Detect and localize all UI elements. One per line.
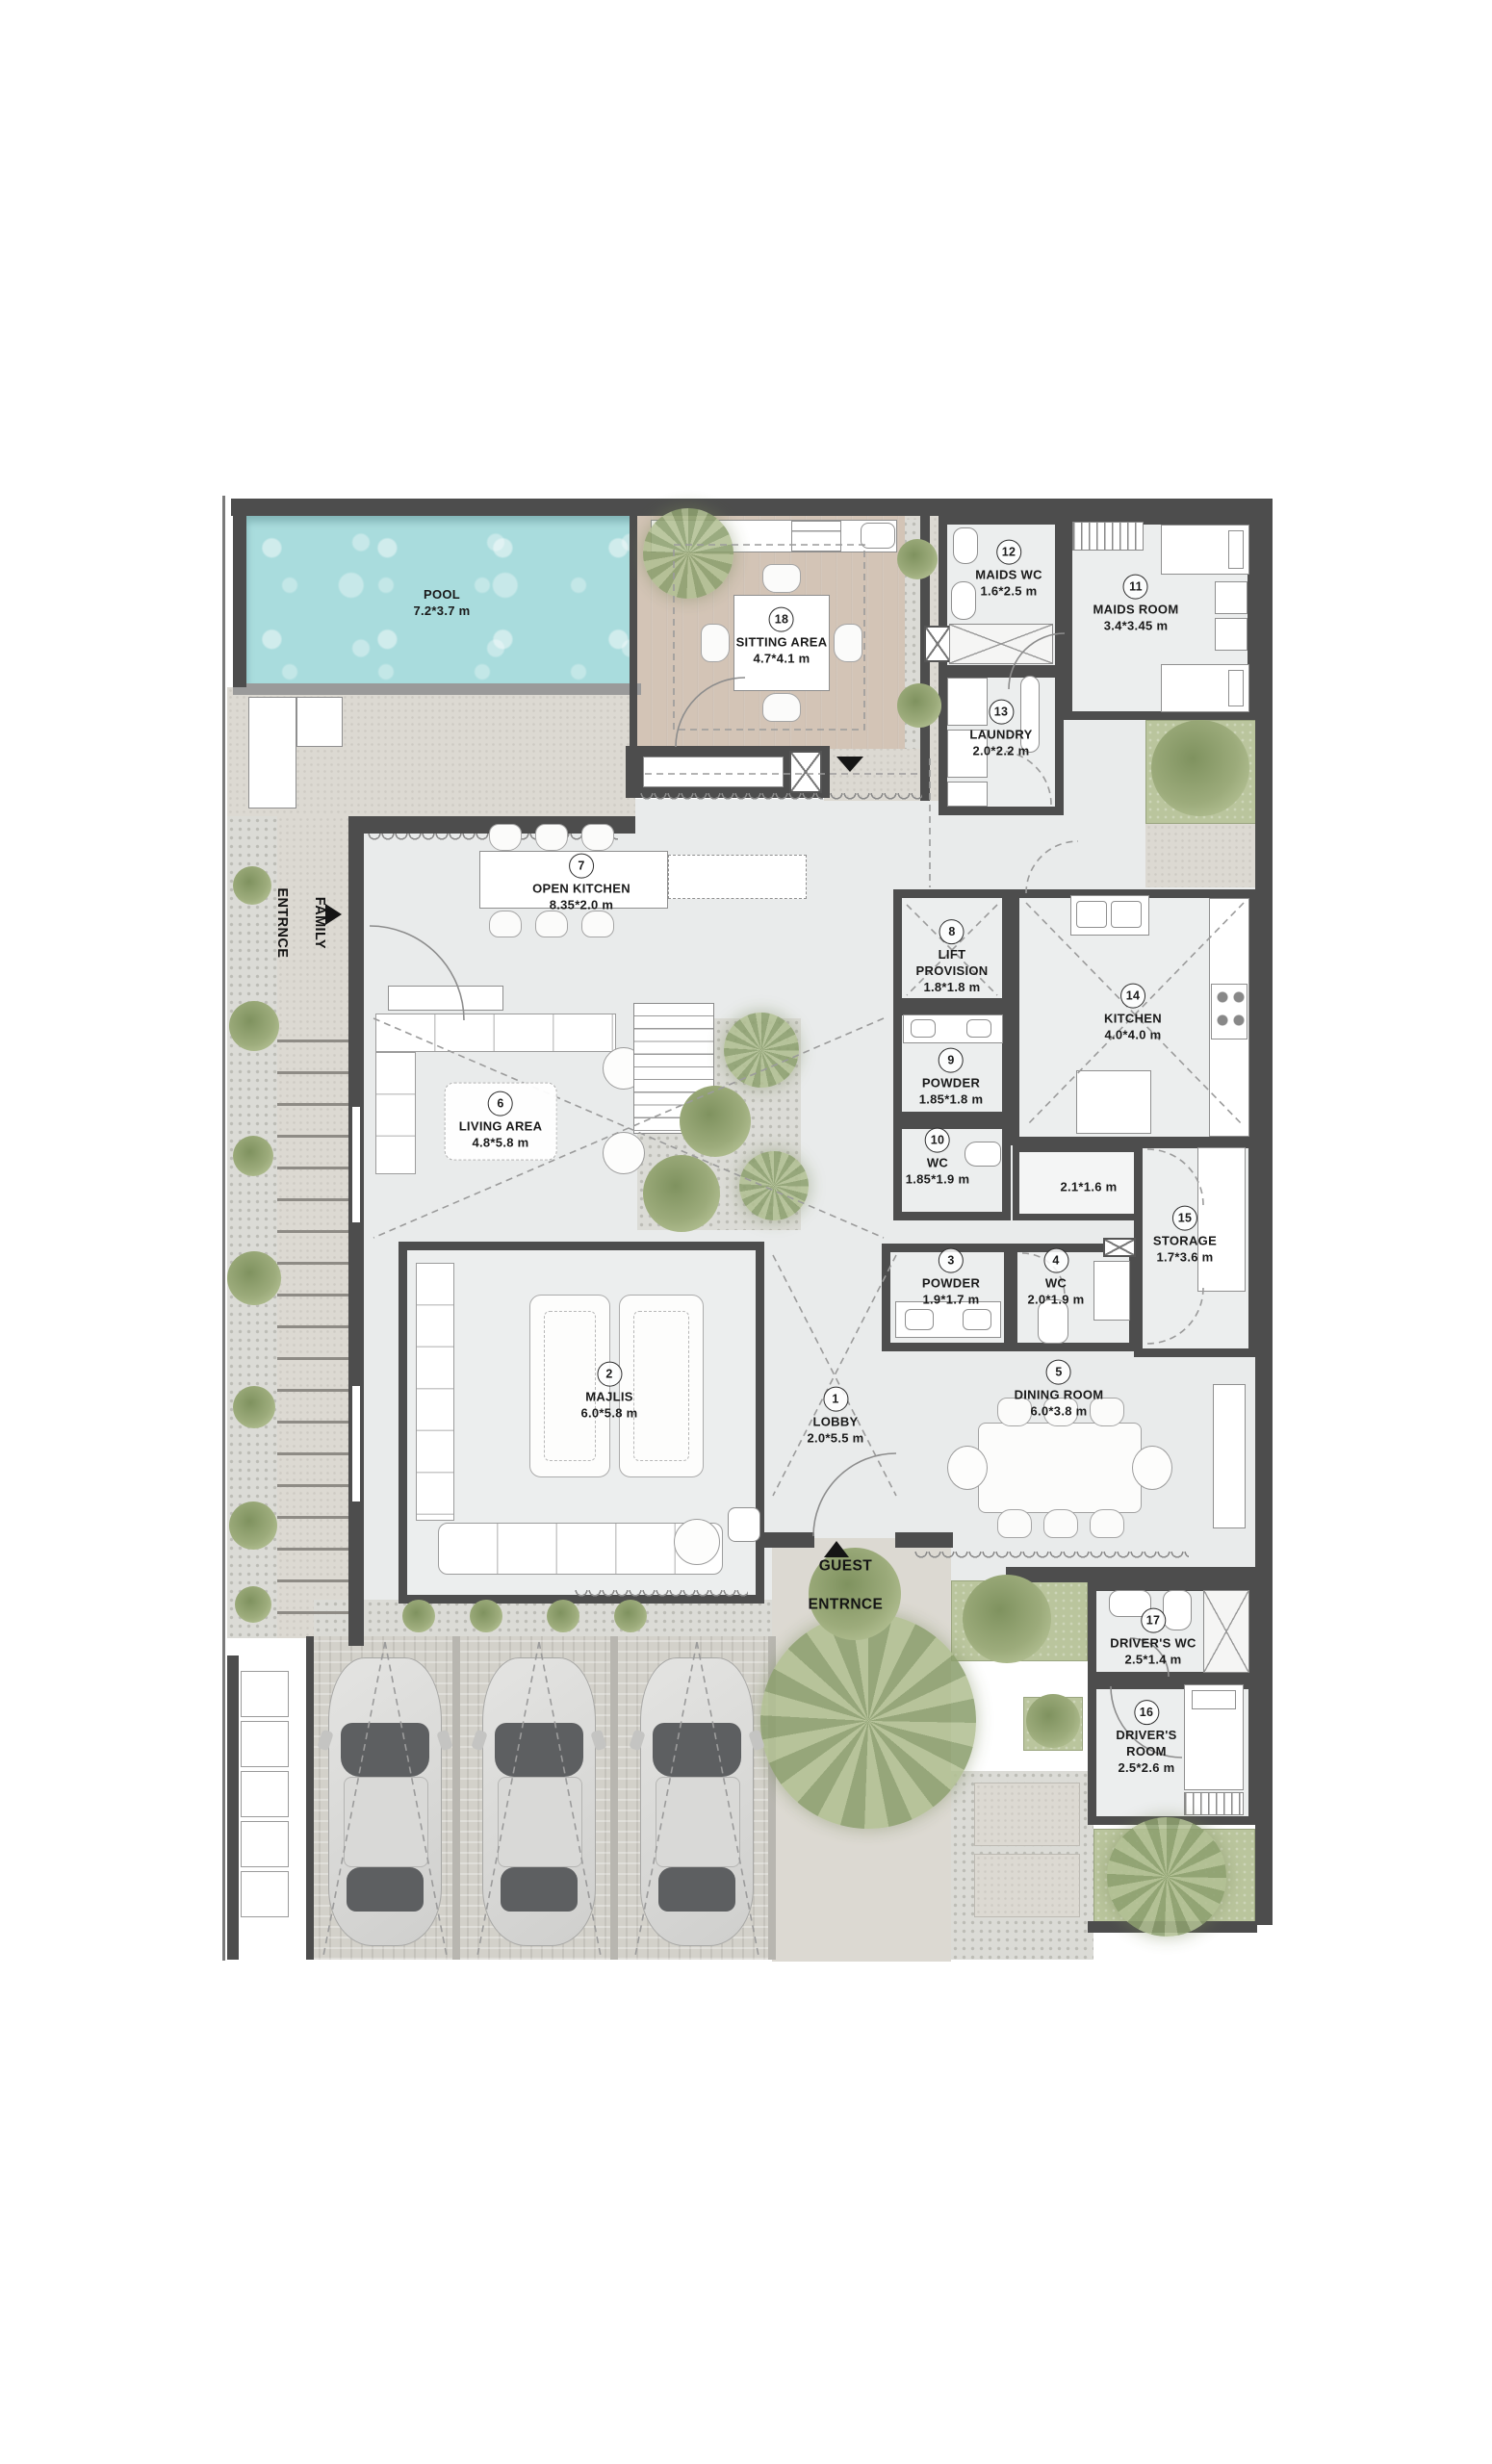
stool-5 bbox=[535, 911, 568, 937]
side-path-palm-2 bbox=[897, 683, 941, 728]
maids-wardrobe bbox=[1072, 522, 1144, 551]
rear-bush-mid bbox=[1026, 1694, 1080, 1748]
room-dims-maids-wc: 1.6*2.5 m bbox=[980, 584, 1037, 599]
garage-bush-3 bbox=[547, 1600, 579, 1632]
stool-3 bbox=[581, 824, 614, 851]
room-label-sitting-area: 18SITTING AREA4.7*4.1 m bbox=[736, 607, 828, 668]
deck-bbq-cabinet bbox=[791, 521, 841, 552]
room-dims-open-kitchen: 8.35*2.0 m bbox=[550, 898, 614, 912]
room-number-drivers-room: 16 bbox=[1134, 1700, 1159, 1725]
window-wavy-1 bbox=[640, 793, 823, 802]
living-sofa-back bbox=[375, 1014, 616, 1052]
powder9-basin-r bbox=[966, 1019, 991, 1038]
room-label-open-kitchen: 7OPEN KITCHEN8.35*2.0 m bbox=[532, 854, 630, 914]
room-name-drivers-room: DRIVER'S ROOM bbox=[1116, 1728, 1176, 1758]
living-armchair-2 bbox=[603, 1132, 645, 1174]
maids-bed-2-pillow bbox=[1228, 670, 1244, 706]
room-number-storage: 15 bbox=[1172, 1206, 1197, 1231]
strip-bush-3 bbox=[233, 1136, 273, 1176]
rear-slab-1 bbox=[974, 1783, 1080, 1846]
rear-tree-top bbox=[963, 1575, 1051, 1663]
room-name-wc-10: WC bbox=[927, 1156, 948, 1170]
room-dims-drivers-wc: 2.5*1.4 m bbox=[1124, 1653, 1181, 1667]
dining-chair-end-r bbox=[1132, 1446, 1172, 1490]
wall-driver-top bbox=[1006, 1567, 1256, 1582]
room-label-maids-room: 11MAIDS ROOM3.4*3.45 m bbox=[1093, 575, 1179, 635]
garage-bush-2 bbox=[470, 1600, 502, 1632]
sitting-south-counter bbox=[643, 757, 784, 787]
maids-wc-shower bbox=[949, 624, 1053, 664]
room-number-maids-room: 11 bbox=[1123, 575, 1148, 600]
car-1-roof bbox=[344, 1777, 428, 1867]
room-name-wc-4: WC bbox=[1045, 1276, 1067, 1291]
room-dims-kitchen: 4.0*4.0 m bbox=[1104, 1028, 1161, 1042]
majlis-corner-table bbox=[728, 1507, 760, 1542]
room-dims-lobby: 2.0*5.5 m bbox=[807, 1431, 863, 1446]
strip-bush-5 bbox=[233, 1386, 275, 1428]
room-name-laundry: LAUNDRY bbox=[969, 728, 1032, 742]
garage-front-pebble bbox=[314, 1600, 776, 1638]
deck-entry-arrow-icon bbox=[836, 757, 863, 772]
dining-table bbox=[978, 1423, 1142, 1513]
fence-panel-3 bbox=[241, 1771, 289, 1817]
room-name-maids-room: MAIDS ROOM bbox=[1093, 603, 1179, 617]
wall-top bbox=[231, 499, 1273, 516]
car-3-roof bbox=[656, 1777, 740, 1867]
stool-1 bbox=[489, 824, 522, 851]
side-path-palm-1 bbox=[897, 539, 938, 579]
kitchen-sink-r bbox=[1111, 901, 1142, 928]
room-label-storage: 15STORAGE1.7*3.6 m bbox=[1153, 1206, 1217, 1267]
maids-courtyard-tree bbox=[1151, 720, 1249, 816]
pool-coping bbox=[233, 683, 641, 695]
dining-chair-end-l bbox=[947, 1446, 988, 1490]
drivers-wardrobe bbox=[1184, 1792, 1244, 1815]
shaft-east bbox=[924, 626, 951, 662]
guest-entrance-line2: ENTRNCE bbox=[809, 1597, 884, 1613]
sitting-chair-n bbox=[762, 564, 801, 593]
room-number-powder-3: 3 bbox=[939, 1248, 964, 1273]
room-label-kitchen: 14KITCHEN4.0*4.0 m bbox=[1104, 984, 1162, 1044]
open-kitchen-ext-counter bbox=[668, 855, 807, 899]
maids-side-table-1 bbox=[1215, 581, 1248, 614]
room-name-kitchen: KITCHEN bbox=[1104, 1012, 1162, 1026]
room-name-open-kitchen: OPEN KITCHEN bbox=[532, 882, 630, 896]
dining-chair-4 bbox=[997, 1509, 1032, 1538]
garage-bush-1 bbox=[402, 1600, 435, 1632]
room-name-powder-9: POWDER bbox=[922, 1076, 980, 1091]
dining-sideboard bbox=[1213, 1384, 1246, 1528]
maids-wc-toilet bbox=[953, 527, 978, 564]
family-entrance-arrow-icon bbox=[325, 904, 342, 925]
room-label-wc-4: 4WC2.0*1.9 m bbox=[1027, 1248, 1084, 1309]
drivers-bed-pillow bbox=[1192, 1690, 1236, 1709]
room-label-kitchen-yard: 2.1*1.6 m bbox=[1060, 1180, 1117, 1196]
guest-entrance-arrow-icon bbox=[824, 1541, 849, 1557]
west-window-2 bbox=[352, 1386, 360, 1501]
car-1 bbox=[328, 1657, 442, 1946]
strip-bush-4 bbox=[227, 1251, 281, 1305]
stool-6 bbox=[581, 911, 614, 937]
window-wavy-4 bbox=[575, 1590, 748, 1599]
garage-bush-4 bbox=[614, 1600, 647, 1632]
room-number-sitting-area: 18 bbox=[769, 607, 794, 632]
kitchen-sink-l bbox=[1076, 901, 1107, 928]
room-label-pool: POOL7.2*3.7 m bbox=[413, 587, 470, 620]
room-dims-lift-provision: 1.8*1.8 m bbox=[923, 980, 980, 994]
powder3-basin-l bbox=[905, 1309, 934, 1330]
room-name-powder-3: POWDER bbox=[922, 1276, 980, 1291]
courtyard-bush-2 bbox=[643, 1155, 720, 1232]
room-name-storage: STORAGE bbox=[1153, 1234, 1217, 1248]
room-label-dining-room: 5DINING ROOM6.0*3.8 m bbox=[1015, 1360, 1104, 1421]
tv-console bbox=[388, 986, 503, 1011]
fence-panel-2 bbox=[241, 1721, 289, 1767]
courtyard-palm-1 bbox=[724, 1013, 799, 1088]
deck-sink bbox=[861, 523, 895, 549]
room-label-maids-wc: 12MAIDS WC1.6*2.5 m bbox=[975, 540, 1042, 601]
fence-panel-5 bbox=[241, 1871, 289, 1917]
window-wavy-2 bbox=[830, 793, 922, 802]
majlis-armchair bbox=[674, 1519, 720, 1565]
room-label-wc-10: 10WC1.85*1.9 m bbox=[906, 1128, 970, 1189]
car-1-rear-window bbox=[347, 1867, 424, 1912]
wall-pool-left bbox=[233, 516, 246, 687]
wall-fence-left bbox=[227, 1655, 239, 1960]
room-label-drivers-room: 16DRIVER'S ROOM2.5*2.6 m bbox=[1116, 1700, 1176, 1777]
room-dims-storage: 1.7*3.6 m bbox=[1156, 1250, 1213, 1265]
room-name-lift-provision: LIFT PROVISION bbox=[916, 947, 989, 978]
car-3-rear-window bbox=[658, 1867, 735, 1912]
car-2 bbox=[482, 1657, 596, 1946]
room-number-kitchen: 14 bbox=[1120, 984, 1145, 1009]
family-entrance-line2: ENTRNCE bbox=[274, 887, 290, 958]
strip-bush-2 bbox=[229, 1001, 279, 1051]
room-dims-powder-3: 1.9*1.7 m bbox=[922, 1293, 979, 1307]
wc4-shower bbox=[1093, 1261, 1130, 1321]
wall-lobby-south-right bbox=[895, 1532, 953, 1548]
room-dims-wc-10: 1.85*1.9 m bbox=[906, 1172, 970, 1187]
hall-floor-top-right bbox=[1064, 720, 1148, 801]
room-number-majlis: 2 bbox=[597, 1362, 622, 1387]
outdoor-sofa-h bbox=[296, 697, 343, 747]
sitting-chair-e bbox=[834, 624, 862, 662]
wall-garage-left bbox=[306, 1636, 314, 1960]
car-3-windshield bbox=[653, 1723, 741, 1777]
laundry-cabinet bbox=[947, 782, 988, 807]
room-dims-laundry: 2.0*2.2 m bbox=[972, 744, 1029, 758]
room-label-lift-provision: 8LIFT PROVISION1.8*1.8 m bbox=[916, 919, 989, 996]
room-name-maids-wc: MAIDS WC bbox=[975, 568, 1042, 582]
powder9-basin-l bbox=[911, 1019, 936, 1038]
room-number-wc-10: 10 bbox=[925, 1128, 950, 1153]
car-2-rear-window bbox=[501, 1867, 578, 1912]
room-dims-powder-9: 1.85*1.8 m bbox=[919, 1092, 984, 1107]
maids-wc-basin bbox=[951, 581, 976, 620]
guest-entrance-line1: GUEST bbox=[819, 1558, 872, 1575]
powder3-basin-r bbox=[963, 1309, 991, 1330]
car-2-windshield bbox=[495, 1723, 583, 1777]
living-sofa-left bbox=[375, 1052, 416, 1174]
room-dims-dining-room: 6.0*3.8 m bbox=[1030, 1404, 1087, 1419]
garage-bay-divider-2 bbox=[610, 1636, 618, 1960]
room-number-drivers-wc: 17 bbox=[1141, 1608, 1166, 1633]
room-label-lobby: 1LOBBY2.0*5.5 m bbox=[807, 1387, 863, 1448]
site-boundary-line bbox=[222, 496, 225, 1961]
wall-west bbox=[348, 834, 364, 1646]
stool-2 bbox=[535, 824, 568, 851]
garage-bay-divider-1 bbox=[452, 1636, 460, 1960]
room-number-lift-provision: 8 bbox=[939, 919, 965, 944]
room-label-powder-9: 9POWDER1.85*1.8 m bbox=[919, 1048, 984, 1109]
room-name-sitting-area: SITTING AREA bbox=[736, 635, 828, 650]
shaft-wc4 bbox=[1103, 1238, 1136, 1257]
room-number-open-kitchen: 7 bbox=[569, 854, 594, 879]
dining-chair-5 bbox=[1043, 1509, 1078, 1538]
majlis-sofa-left bbox=[416, 1263, 454, 1521]
kitchen-island bbox=[1076, 1070, 1151, 1134]
room-dims-pool: 7.2*3.7 m bbox=[413, 603, 470, 618]
rear-palm-bottom bbox=[1107, 1817, 1226, 1937]
stool-4 bbox=[489, 911, 522, 937]
strip-bush-6 bbox=[229, 1501, 277, 1550]
room-number-wc-4: 4 bbox=[1043, 1248, 1068, 1273]
car-2-roof bbox=[498, 1777, 582, 1867]
room-number-lobby: 1 bbox=[823, 1387, 848, 1412]
room-dims-living-area: 4.8*5.8 m bbox=[472, 1136, 528, 1150]
room-number-maids-wc: 12 bbox=[996, 540, 1021, 565]
room-label-drivers-wc: 17DRIVER'S WC2.5*1.4 m bbox=[1110, 1608, 1196, 1669]
maids-bed-1-pillow bbox=[1228, 530, 1244, 569]
wall-right bbox=[1255, 516, 1273, 1925]
room-dims-maids-room: 3.4*3.45 m bbox=[1104, 619, 1169, 633]
room-label-laundry: 13LAUNDRY2.0*2.2 m bbox=[969, 700, 1032, 760]
dining-chair-6 bbox=[1090, 1509, 1124, 1538]
rear-slab-2 bbox=[974, 1854, 1080, 1917]
deck-planter-palm bbox=[643, 508, 733, 599]
sitting-chair-s bbox=[762, 693, 801, 722]
room-number-laundry: 13 bbox=[989, 700, 1014, 725]
courtyard-bush-1 bbox=[680, 1086, 751, 1157]
room-number-living-area: 6 bbox=[488, 1091, 513, 1116]
room-dims-sitting-area: 4.7*4.1 m bbox=[753, 652, 810, 666]
room-name-lobby: LOBBY bbox=[812, 1415, 858, 1429]
outdoor-sofa-v bbox=[248, 697, 296, 808]
kitchen-stove bbox=[1211, 984, 1248, 1039]
room-label-powder-3: 3POWDER1.9*1.7 m bbox=[922, 1248, 980, 1309]
room-name-majlis: MAJLIS bbox=[585, 1390, 632, 1404]
room-number-dining-room: 5 bbox=[1046, 1360, 1071, 1385]
walkway-steps bbox=[277, 1011, 348, 1638]
room-label-living-area: 6LIVING AREA4.8*5.8 m bbox=[445, 1083, 557, 1161]
car-1-windshield bbox=[341, 1723, 429, 1777]
floor-plan: FAMILY ENTRNCE GUEST ENTRNCE 1LOBBY2.0*5… bbox=[0, 0, 1492, 2464]
room-name-drivers-wc: DRIVER'S WC bbox=[1110, 1636, 1196, 1651]
drivers-wc-shower bbox=[1203, 1590, 1249, 1673]
maids-courtyard-paving bbox=[1145, 824, 1257, 887]
west-window-1 bbox=[352, 1107, 360, 1222]
car-3 bbox=[640, 1657, 754, 1946]
room-number-powder-9: 9 bbox=[939, 1048, 964, 1073]
sitting-chair-w bbox=[701, 624, 730, 662]
wc10-toilet bbox=[965, 1142, 1001, 1167]
room-dims-majlis: 6.0*5.8 m bbox=[580, 1406, 637, 1421]
room-name-dining-room: DINING ROOM bbox=[1015, 1388, 1104, 1402]
fence-panel-4 bbox=[241, 1821, 289, 1867]
room-dims-kitchen-yard: 2.1*1.6 m bbox=[1060, 1180, 1117, 1194]
courtyard-palm-2 bbox=[739, 1151, 809, 1220]
maids-side-table-2 bbox=[1215, 618, 1248, 651]
strip-bush-7 bbox=[235, 1586, 271, 1623]
shaft-deck bbox=[789, 751, 822, 793]
room-dims-wc-4: 2.0*1.9 m bbox=[1027, 1293, 1084, 1307]
room-name-living-area: LIVING AREA bbox=[459, 1119, 543, 1134]
guest-path-palm bbox=[760, 1613, 976, 1829]
room-name-pool: POOL bbox=[424, 587, 460, 602]
room-dims-drivers-room: 2.5*2.6 m bbox=[1118, 1760, 1174, 1775]
room-label-majlis: 2MAJLIS6.0*5.8 m bbox=[580, 1362, 637, 1423]
wall-deck-left bbox=[630, 516, 637, 749]
window-wavy-3 bbox=[914, 1552, 1189, 1560]
fence-panel-1 bbox=[241, 1671, 289, 1717]
